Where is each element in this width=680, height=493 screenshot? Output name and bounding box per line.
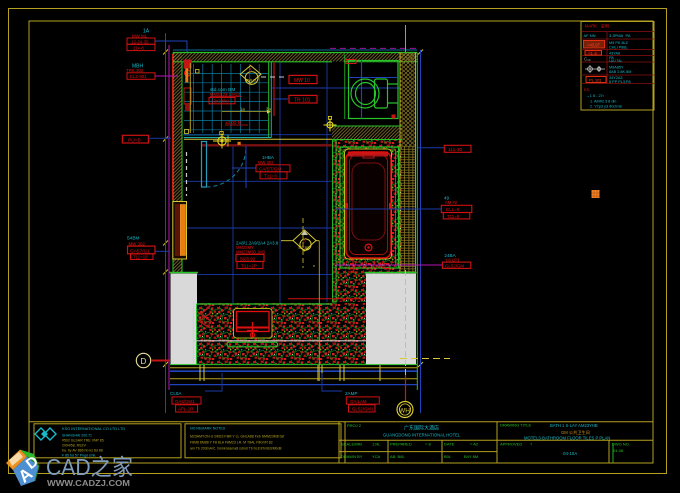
svg-text:04-10A: 04-10A: [563, 451, 577, 456]
svg-text:x: x: [313, 263, 315, 268]
svg-text:LAU TAL: LAU TAL: [609, 59, 623, 63]
svg-text:T11=9: T11=9: [447, 214, 460, 219]
svg-text:am Tb 203mA/C. bsmknsama8 sdmd: am Tb 203mA/C. bsmknsama8 sdmd Tb bL8 87…: [190, 447, 282, 451]
svg-text:04-08: 04-08: [613, 448, 624, 453]
svg-text:NO REMARK NOTES: NO REMARK NOTES: [190, 427, 226, 431]
svg-text:8 PP PL3 P8: 8 PP PL3 P8: [609, 80, 631, 84]
svg-text:111-30: 111-30: [448, 147, 463, 153]
svg-text:±0.00 M: ±0.00 M: [225, 120, 242, 125]
svg-text:ba. by AV 886 hb k2 8d 88: ba. by AV 886 hb k2 8d 88: [62, 449, 103, 453]
svg-text:PROJ 2: PROJ 2: [347, 423, 362, 428]
svg-text:WH: WH: [399, 408, 410, 415]
svg-text:CAD之家: CAD之家: [46, 454, 133, 480]
svg-text:TRK 302: TRK 302: [126, 68, 144, 73]
svg-text:AB. B8L: AB. B8L: [390, 454, 405, 459]
svg-text:SHANGHAI 200.71: SHANGHAI 200.71: [62, 434, 92, 438]
svg-text:T11=18: T11=18: [133, 255, 148, 260]
svg-text:SCALE/MM: SCALE/MM: [341, 442, 362, 447]
svg-text:CHLI P88L: CHLI P88L: [609, 45, 628, 49]
svg-text:MOTEL3-BATHROOM FLOOR TILES P: MOTEL3-BATHROOM FLOOR TILES P PLAN: [524, 435, 610, 440]
svg-text:PU=B: PU=B: [128, 138, 141, 144]
svg-text:PL 101: PL 101: [589, 77, 602, 82]
svg-text:5: 5: [249, 68, 252, 74]
svg-text:PREPARED: PREPARED: [390, 442, 412, 447]
svg-text:1. AM#2 3 8 din: 1. AM#2 3 8 din: [590, 99, 616, 103]
svg-text:GL52/GM1: GL52/GM1: [352, 407, 374, 412]
svg-text:CA/ST/GM: CA/ST/GM: [259, 167, 281, 172]
svg-text:=3, 8: =3, 8: [588, 52, 597, 56]
svg-text:Y.8 LP3: Y.8 LP3: [445, 257, 460, 262]
svg-text:GUANGDONG INTERNATIONAL HOTEL: GUANGDONG INTERNATIONAL HOTEL: [383, 433, 461, 438]
svg-text:M9 PK 8LZ: M9 PK 8LZ: [609, 41, 629, 45]
svg-text:8AB 2.8K 8M: 8AB 2.8K 8M: [609, 70, 631, 74]
svg-text:DRAWING TITLE: DRAWING TITLE: [500, 423, 531, 428]
svg-text:GA5/GM1: GA5/GM1: [175, 399, 195, 404]
svg-text:MM23.23.1.M23: MM23.23.1.M23: [210, 92, 241, 97]
svg-text:= A2: = A2: [470, 442, 479, 447]
svg-text:M9A85Y: M9A85Y: [609, 65, 624, 69]
svg-text:C₀ₑ: C₀ₑ: [584, 57, 591, 62]
svg-text:广东国际大酒店: 广东国际大酒店: [404, 425, 439, 432]
svg-text:ED: ED: [584, 87, 590, 92]
svg-text:EL2-901: EL2-901: [130, 74, 147, 79]
svg-text:BATH 1 S-LAY AM23YHB: BATH 1 S-LAY AM23YHB: [550, 423, 598, 428]
svg-text:MARK 说明: MARK 说明: [585, 23, 609, 30]
svg-text:MW-D: MW-D: [245, 78, 256, 83]
svg-text:1:NL: 1:NL: [372, 442, 381, 447]
svg-text:CL5A: CL5A: [170, 391, 182, 396]
svg-text:MY3D: MY3D: [299, 246, 310, 250]
svg-text:MW 10: MW 10: [294, 78, 310, 84]
svg-text:B0L: B0L: [444, 454, 452, 459]
svg-text:2. Y2p3 y3 8G2m8: 2. Y2p3 y3 8G2m8: [590, 105, 622, 109]
svg-text:43YA8: 43YA8: [609, 52, 620, 56]
svg-text:6: 6: [303, 239, 306, 245]
svg-text:12-24-35: 12-24-35: [131, 39, 149, 44]
svg-text:GA/LAM: GA/LAM: [350, 399, 367, 404]
svg-text:GL52/GM: GL52/GM: [445, 263, 464, 268]
svg-text:2004/58. RSZV: 2004/58. RSZV: [62, 444, 87, 448]
svg-text:3.3PMA PA: 3.3PMA PA: [609, 33, 631, 38]
svg-text:MW 302: MW 302: [258, 160, 274, 165]
svg-text:56/8.92: 56/8.92: [240, 256, 256, 261]
svg-text:M23AMYON G SM23 F8M Y LL GHLA8: M23AMYON G SM23 F8M Y LL GHLA88 Feb SMM2…: [190, 435, 284, 439]
svg-text:KSG INTERNATIONAL CO LTD LTD: KSG INTERNATIONAL CO LTD LTD: [62, 426, 125, 431]
svg-text:=43.97: =43.97: [587, 42, 601, 47]
svg-text:DWG NO.: DWG NO.: [612, 442, 630, 447]
svg-text:→1 8 - 27r: →1 8 - 27r: [586, 94, 605, 98]
svg-text:1a: 1a: [240, 107, 245, 112]
svg-text:WWW.CADZJ.COM: WWW.CADZJ.COM: [47, 478, 130, 488]
svg-text:2AMP: 2AMP: [345, 391, 358, 396]
svg-text:11x-8: 11x-8: [133, 46, 144, 51]
svg-text:= 8: = 8: [425, 442, 431, 447]
svg-text:DATE: DATE: [444, 442, 455, 447]
svg-text:AF NN: AF NN: [584, 33, 596, 38]
svg-text:T11=3: T11=3: [264, 174, 277, 179]
svg-text:D: D: [141, 357, 147, 366]
svg-text:TR 101: TR 101: [294, 98, 311, 104]
svg-text:DRAWN BY: DRAWN BY: [341, 454, 363, 459]
svg-text:(2x2 tile): (2x2 tile): [212, 99, 229, 104]
svg-text:ELL=9: ELL=9: [446, 207, 460, 212]
svg-text:YCA: YCA: [372, 454, 381, 459]
svg-text:54BM: 54BM: [127, 235, 140, 241]
svg-text:B4Y 8M: B4Y 8M: [464, 454, 478, 459]
svg-text:#502 GLSHR TRE VNP 85: #502 GLSHR TRE VNP 85: [62, 439, 104, 443]
svg-text:T11=2P: T11=2P: [241, 263, 257, 268]
svg-text:APPROVED: APPROVED: [500, 442, 522, 447]
svg-text:AM #2: AM #2: [445, 200, 458, 205]
svg-text:F8M8 8M88 Y F8 8LA F8M23 LR. M: F8M8 8M88 Y F8 8LA F8M23 LR. M T8AL F8GV…: [190, 441, 273, 445]
svg-text:APL-1R: APL-1R: [178, 407, 193, 412]
